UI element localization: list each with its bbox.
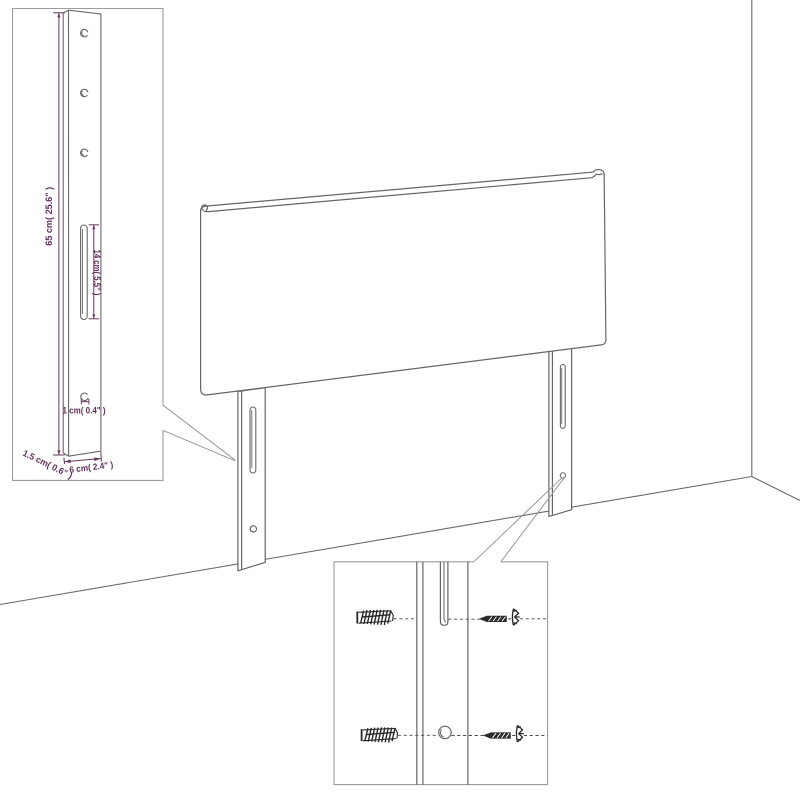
svg-text:1 cm( 0.4" ): 1 cm( 0.4" ) [63,406,106,416]
svg-text:14 cm( 5.5" ): 14 cm( 5.5" ) [92,250,102,296]
svg-text:65 cm( 25.6" ): 65 cm( 25.6" ) [44,187,54,246]
svg-text:6 cm( 2.4" ): 6 cm( 2.4" ) [69,460,114,475]
